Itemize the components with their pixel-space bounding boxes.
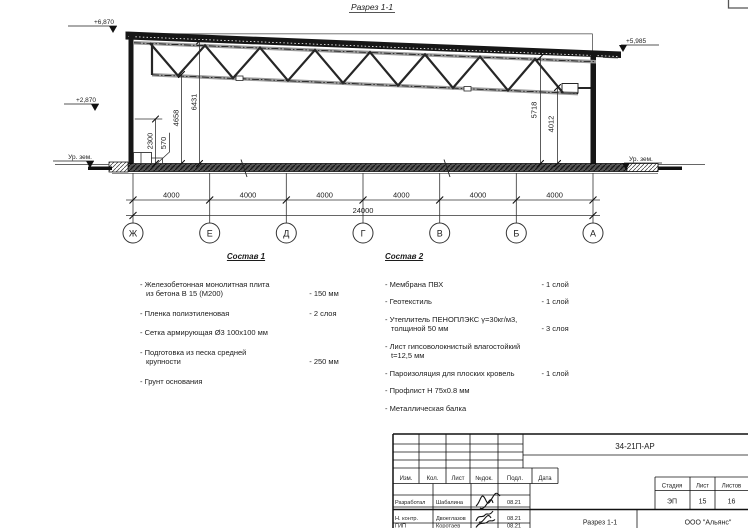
span-dim: 4000 bbox=[316, 191, 333, 200]
grid-axes: Ж Е Д Г В Б А bbox=[123, 223, 603, 243]
composition-list-2: Состав 2 - Мембрана ПВХ - 1 слой - Геоте… bbox=[385, 252, 585, 421]
dim-4658: 4658 bbox=[172, 110, 181, 127]
sign-name: Коротаев bbox=[436, 524, 460, 528]
item-value: - 1 слой bbox=[541, 369, 585, 379]
item-text: - Подготовка из песка средней крупности bbox=[140, 348, 309, 367]
rev-col-podp: Подл. bbox=[507, 476, 524, 482]
ground-level-right: Ур. зем. bbox=[629, 156, 653, 163]
rev-col-data: Дата bbox=[538, 476, 552, 482]
composition-2-title: Состав 2 bbox=[385, 252, 585, 262]
item-value: - 2 слоя bbox=[309, 309, 352, 319]
elevation-mid-left: +2,870 bbox=[76, 97, 96, 104]
rev-col-list: Лист bbox=[451, 476, 464, 482]
drawing-sheet: Разрез 1-1 bbox=[0, 0, 748, 528]
list-item: - Железобетонная монолитная плита из бет… bbox=[140, 280, 352, 299]
axis-label: Б bbox=[513, 229, 519, 239]
rev-col-dok: №док. bbox=[475, 475, 493, 482]
elevation-flag-icon bbox=[109, 26, 117, 33]
item-value: - 1 слой bbox=[541, 280, 585, 290]
axis-label: Г bbox=[361, 229, 366, 239]
ground-level-left: Ур. зем. bbox=[68, 154, 92, 161]
item-text: - Железобетонная монолитная плита из бет… bbox=[140, 280, 309, 299]
sign-date: 08.21 bbox=[507, 524, 521, 528]
sheets-value: 16 bbox=[728, 499, 736, 506]
rev-col-kol: Кол. bbox=[427, 476, 439, 482]
list-item: - Лист гипсоволокнистый влагостойкий t=1… bbox=[385, 342, 585, 361]
sign-name: Шабалина bbox=[436, 500, 464, 506]
right-column bbox=[591, 54, 597, 164]
list-item: - Пароизоляция для плоских кровель - 1 с… bbox=[385, 369, 585, 379]
sheets-label: Листов bbox=[722, 484, 742, 490]
item-text: - Сетка армирующая Ø3 100х100 мм bbox=[140, 328, 309, 338]
total-dim: 24000 bbox=[353, 206, 374, 215]
item-value: - 3 слоя bbox=[541, 324, 585, 334]
company-name: ООО "Альянс" bbox=[685, 520, 732, 527]
list-item: - Грунт основания bbox=[140, 377, 352, 387]
dim-2300: 2300 bbox=[146, 133, 155, 150]
signature-scribble bbox=[476, 520, 495, 528]
rev-col-izm: Изм. bbox=[400, 476, 413, 482]
title-block bbox=[393, 434, 748, 528]
plinth-step bbox=[134, 153, 163, 164]
dim-6431: 6431 bbox=[190, 94, 199, 111]
item-text: - Грунт основания bbox=[140, 377, 309, 387]
sign-name: Двоеглазов bbox=[436, 516, 466, 522]
elevation-flag-icon bbox=[91, 104, 99, 111]
list-item: - Сетка армирующая Ø3 100х100 мм bbox=[140, 328, 352, 338]
span-dim: 4000 bbox=[470, 191, 487, 200]
composition-1-title: Состав 1 bbox=[140, 252, 352, 262]
span-dim: 4000 bbox=[393, 191, 410, 200]
axis-label: А bbox=[590, 229, 596, 239]
list-item: - Утеплитель ПЕНОПЛЭКС γ=30кг/м3, толщин… bbox=[385, 315, 585, 334]
elevation-top-right: +5,985 bbox=[626, 38, 646, 45]
item-text: - Геотекстиль bbox=[385, 297, 541, 307]
item-text: - Металлическая балка bbox=[385, 404, 541, 414]
item-text: - Лист гипсоволокнистый влагостойкий t=1… bbox=[385, 342, 541, 361]
axis-label: Е bbox=[207, 229, 213, 239]
list-item: - Геотекстиль - 1 слой bbox=[385, 297, 585, 307]
item-text: - Утеплитель ПЕНОПЛЭКС γ=30кг/м3, толщин… bbox=[385, 315, 541, 334]
sheet-value: 15 bbox=[699, 499, 707, 506]
ground-mark-right bbox=[658, 167, 682, 171]
stage-label: Стадия bbox=[662, 484, 682, 490]
list-item: - Подготовка из песка средней крупности … bbox=[140, 348, 352, 367]
dim-5718: 5718 bbox=[530, 102, 539, 119]
elevation-top-left: +6,870 bbox=[94, 19, 114, 26]
list-item: - Пленка полиэтиленовая - 2 слоя bbox=[140, 309, 352, 319]
span-dim: 4000 bbox=[240, 191, 257, 200]
signature-scribble bbox=[476, 493, 500, 508]
roof-edge-ext bbox=[603, 58, 618, 59]
item-value: - 250 мм bbox=[309, 357, 352, 367]
ground-mark-left bbox=[88, 167, 112, 171]
left-column bbox=[129, 33, 134, 165]
section-drawing-svg: Разрез 1-1 bbox=[0, 0, 748, 528]
axis-label: Ж bbox=[129, 229, 138, 239]
elevation-flag-icon bbox=[619, 45, 627, 52]
slab-band bbox=[112, 164, 658, 172]
doc-code: 34-21П-АР bbox=[615, 442, 655, 451]
item-text: - Пленка полиэтиленовая bbox=[140, 309, 309, 319]
sign-role: ГИП bbox=[395, 524, 406, 528]
span-dim: 4000 bbox=[163, 191, 180, 200]
item-value: - 150 мм bbox=[309, 289, 352, 299]
sheet-frame-corner bbox=[729, 0, 748, 8]
sign-role: Н. контр. bbox=[395, 516, 419, 522]
dimension-chain: 4000 4000 4000 4000 4000 4000 24000 bbox=[126, 173, 600, 223]
sign-date: 08.21 bbox=[507, 500, 521, 506]
list-item: - Профлист Н 75х0.8 мм bbox=[385, 386, 585, 396]
axis-label: В bbox=[437, 229, 443, 239]
item-text: - Профлист Н 75х0.8 мм bbox=[385, 386, 541, 396]
building-section bbox=[55, 32, 705, 178]
item-value: - 1 слой bbox=[541, 297, 585, 307]
sheet-label: Лист bbox=[696, 484, 709, 490]
dim-570: 570 bbox=[159, 137, 168, 150]
span-dim: 4000 bbox=[546, 191, 563, 200]
axis-label: Д bbox=[283, 229, 289, 239]
item-text: - Мембрана ПВХ bbox=[385, 280, 541, 290]
item-text: - Пароизоляция для плоских кровель bbox=[385, 369, 541, 379]
section-name: Разрез 1-1 bbox=[583, 520, 617, 527]
dim-4012: 4012 bbox=[547, 116, 556, 133]
composition-list-1: Состав 1 - Железобетонная монолитная пли… bbox=[140, 252, 352, 396]
sign-date: 08.21 bbox=[507, 516, 521, 522]
foundation-hatch-right bbox=[627, 164, 658, 172]
list-item: - Металлическая балка bbox=[385, 404, 585, 414]
section-title: Разрез 1-1 bbox=[351, 2, 393, 12]
sign-role: Разработал bbox=[395, 500, 425, 506]
list-item: - Мембрана ПВХ - 1 слой bbox=[385, 280, 585, 290]
stage-value: ЭП bbox=[667, 499, 677, 506]
truss-gusset-2 bbox=[464, 87, 471, 92]
truss-gusset-1 bbox=[236, 76, 243, 81]
